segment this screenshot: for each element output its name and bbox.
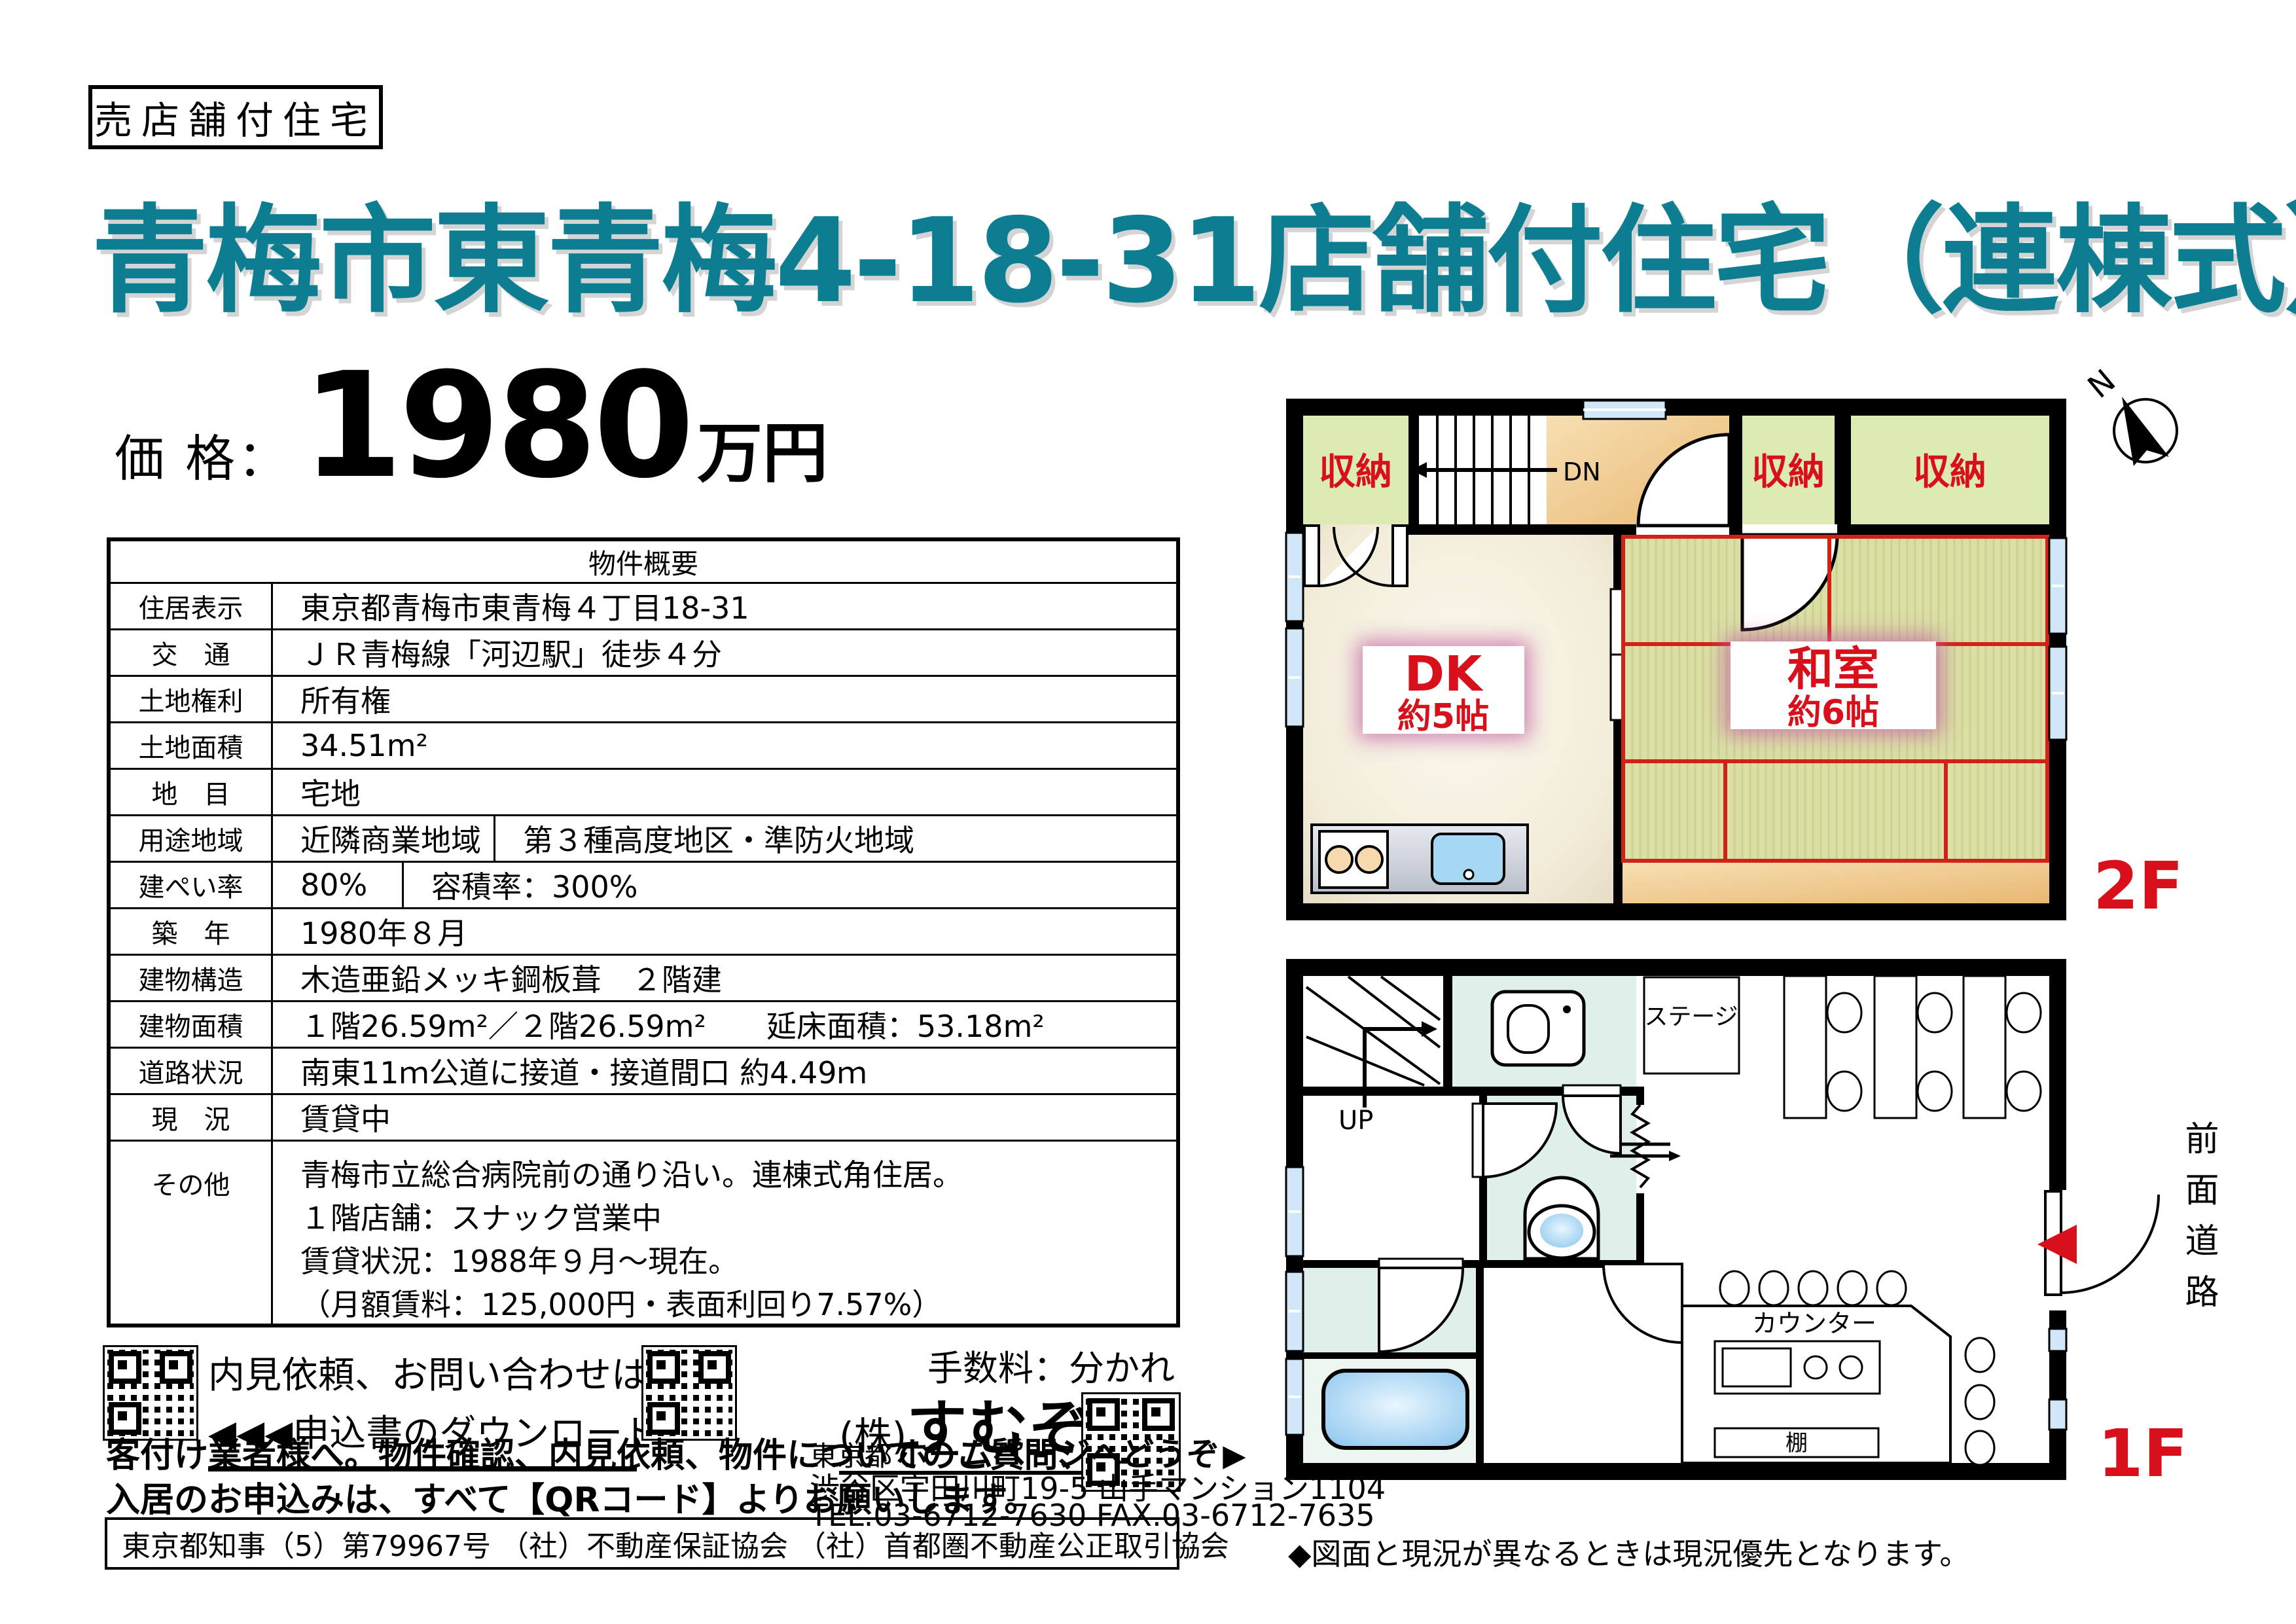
row-value: １階26.59m²／２階26.59m² 延床面積：53.18m² (273, 1002, 1045, 1047)
table-row: 用途地域近隣商業地域第３種高度地区・準防火地域 (111, 814, 1176, 861)
storage-label: 収納 (1751, 451, 1825, 494)
remarks-line: 賃貸状況：1988年９月～現在。 (300, 1240, 738, 1283)
row-label: 築 年 (111, 909, 273, 954)
row-label: 土地面積 (111, 723, 273, 768)
remarks-line: １階店舗：スナック営業中 (300, 1197, 662, 1240)
table-row: 土地面積34.51m² (111, 721, 1176, 768)
row-value: 東京都青梅市東青梅４丁目18-31 (273, 584, 749, 628)
spec-table-title: 物件概要 (111, 541, 1176, 582)
kitchen-island (1715, 1341, 1880, 1394)
floor-label-1f: 1F (2098, 1415, 2188, 1492)
shelf-label: 棚 (1785, 1430, 1808, 1456)
kitchen-counter (1312, 825, 1528, 893)
agent-note: 客付け業者様へ。物件確認、内見依頼、物件についてのご質問、 入居のお申込みは、す… (106, 1434, 1092, 1523)
row-value-2: 第３種高度地区・準防火地域 (495, 816, 914, 861)
price-unit: 万円 (697, 400, 828, 495)
row-value: 南東11ｍ公道に接道・接道間口 約4.49ｍ (273, 1049, 867, 1093)
property-spec-table: 物件概要 住居表示東京都青梅市東青梅４丁目18-31 交 通ＪＲ青梅線「河辺駅」… (107, 537, 1180, 1327)
row-label: 交 通 (111, 630, 273, 675)
table-row: 建物面積１階26.59m²／２階26.59m² 延床面積：53.18m² (111, 1000, 1176, 1047)
row-value: 34.51m² (273, 723, 428, 768)
svg-text:約5帖: 約5帖 (1397, 697, 1489, 736)
qr-code-icon (105, 1347, 196, 1439)
front-road-label: 前面道路 (2174, 1121, 2223, 1325)
license-box: 東京都知事（5）第79967号 （社）不動産保証協会 （社）首都圏不動産公正取引… (105, 1517, 1179, 1570)
price-amount: 1980 (302, 353, 691, 499)
row-label: 住居表示 (111, 584, 273, 628)
sale-type-badge: 売店舗付住宅 (88, 85, 383, 149)
table-row: 建ぺい率80%容積率：300% (111, 861, 1176, 907)
booth-tables (1784, 976, 2041, 1118)
floor-plan-2f: DN (1283, 353, 2296, 943)
table-row: 現 況賃貸中 (111, 1093, 1176, 1140)
remarks-line: 青梅市立総合病院前の通り沿い。連棟式角住居。 (300, 1153, 963, 1197)
table-row: 築 年1980年８月 (111, 907, 1176, 954)
price-label: 価 格： (115, 418, 290, 490)
counter-label: カウンター (1752, 1309, 1876, 1338)
row-value: 宅地 (273, 770, 361, 814)
row-value: 80% (273, 863, 404, 907)
row-value: 木造亜鉛メッキ鋼板葺 ２階建 (273, 956, 722, 1000)
row-label: 建物面積 (111, 1002, 273, 1047)
row-value-2: 容積率：300% (404, 863, 638, 907)
row-value: 所有権 (273, 677, 391, 721)
table-row: 土地権利所有権 (111, 675, 1176, 721)
table-row: 地 目宅地 (111, 768, 1176, 814)
row-label: 用途地域 (111, 816, 273, 861)
agent-note-line: 入居のお申込みは、すべて【QRコード】よりお願いします。 (106, 1478, 1092, 1523)
table-row: 交 通ＪＲ青梅線「河辺駅」徒歩４分 (111, 628, 1176, 675)
row-label: 建物構造 (111, 956, 273, 1000)
row-label: その他 (111, 1142, 273, 1324)
row-value: 近隣商業地域 (273, 816, 495, 861)
svg-text:DK: DK (1405, 646, 1484, 702)
table-row: 道路状況南東11ｍ公道に接道・接道間口 約4.49ｍ (111, 1047, 1176, 1093)
up-label: UP (1338, 1106, 1373, 1136)
table-row: 建物構造木造亜鉛メッキ鋼板葺 ２階建 (111, 954, 1176, 1000)
row-label: 土地権利 (111, 677, 273, 721)
row-value: 賃貸中 (273, 1095, 391, 1140)
toilet-icon (1525, 1178, 1598, 1259)
floor-label-2f: 2F (2093, 848, 2183, 924)
svg-text:約6帖: 約6帖 (1787, 693, 1879, 732)
agent-note-line: 客付け業者様へ。物件確認、内見依頼、物件についてのご質問、 (106, 1434, 1092, 1478)
page-title: 青梅市東青梅4-18-31店舗付住宅（連棟式） (92, 167, 2296, 335)
row-label: 地 目 (111, 770, 273, 814)
svg-text:N: N (2081, 363, 2123, 406)
compass-icon: N (2081, 363, 2177, 466)
row-value-multiline: 青梅市立総合病院前の通り沿い。連棟式角住居。 １階店舗：スナック営業中 賃貸状況… (273, 1142, 963, 1324)
sink-icon (1723, 1348, 1791, 1386)
bathtub-icon (1323, 1371, 1467, 1448)
washing-machine-icon (1492, 992, 1584, 1065)
table-row: 住居表示東京都青梅市東青梅４丁目18-31 (111, 582, 1176, 628)
qr-code-icon (643, 1347, 735, 1439)
row-value: ＪＲ青梅線「河辺駅」徒歩４分 (273, 630, 722, 675)
floor-plan-1f: UP ステージ (1283, 936, 2296, 1591)
dn-label: DN (1563, 458, 1601, 486)
row-label: 道路状況 (111, 1049, 273, 1093)
tatami-label-box: 和室 約6帖 (1725, 636, 1941, 734)
storage-label: 収納 (1913, 451, 1986, 494)
row-label: 現 況 (111, 1095, 273, 1140)
price-block: 価 格： 1980 万円 (115, 353, 828, 499)
table-row-remarks: その他 青梅市立総合病院前の通り沿い。連棟式角住居。 １階店舗：スナック営業中 … (111, 1140, 1176, 1324)
plan-disclaimer-note: ◆図面と現況が異なるときは現況優先となります。 (1288, 1530, 1969, 1574)
storage-label: 収納 (1319, 451, 1392, 494)
row-value: 1980年８月 (273, 909, 467, 954)
inquiry-text: 内見依頼、お問い合わせは (208, 1354, 648, 1397)
svg-text:和室: 和室 (1787, 642, 1879, 696)
dk-label-box: DK 約5帖 (1357, 641, 1530, 739)
remarks-line: （月額賃料：125,000円・表面利回り7.57%） (300, 1283, 942, 1326)
balcony (1621, 863, 2049, 903)
row-label: 建ぺい率 (111, 863, 273, 907)
stage-label: ステージ (1644, 1003, 1738, 1030)
